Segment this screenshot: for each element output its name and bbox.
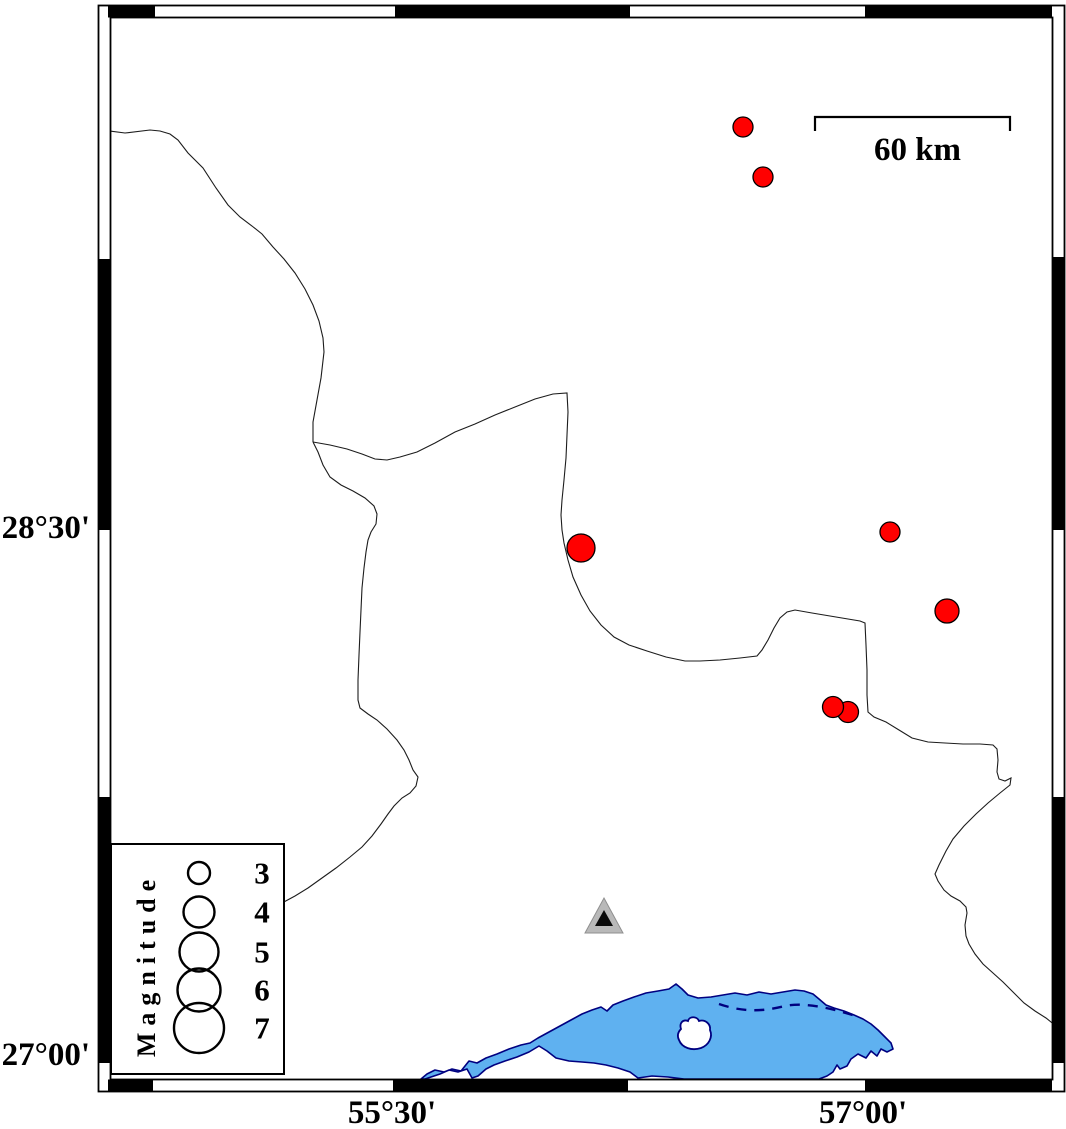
lat-label-28-30: 28°30' bbox=[0, 509, 90, 547]
frame-tick-segment bbox=[393, 1080, 628, 1092]
epicenter-marker bbox=[935, 599, 959, 623]
legend-magnitude-value: 5 bbox=[254, 935, 270, 970]
epicenter-layer bbox=[567, 117, 959, 723]
legend-magnitude-circle bbox=[184, 897, 215, 928]
legend-magnitude-value: 7 bbox=[254, 1011, 270, 1046]
scale-bar bbox=[815, 117, 1010, 131]
station-layer bbox=[585, 898, 623, 933]
magnitude-legend: Magnitude 34567 bbox=[110, 843, 285, 1075]
frame-tick-segment bbox=[108, 1080, 153, 1092]
scale-bar-label: 60 km bbox=[838, 132, 998, 169]
water-body bbox=[421, 984, 893, 1079]
lat-label-27-00: 27°00' bbox=[0, 1036, 90, 1074]
legend-magnitude-value: 6 bbox=[254, 973, 270, 1008]
epicenter-marker bbox=[823, 697, 844, 718]
frame-tick-segment bbox=[1053, 797, 1065, 1063]
boundary-line-west bbox=[110, 130, 324, 442]
seismicity-map: Magnitude 34567 28°30' 27°00' 55°30' 57°… bbox=[0, 0, 1066, 1129]
frame-tick-segment bbox=[865, 6, 1052, 18]
lon-label-55-30: 55°30' bbox=[312, 1094, 472, 1129]
legend-magnitude-circle bbox=[178, 969, 221, 1012]
boundary-branch-south bbox=[282, 442, 418, 903]
island bbox=[678, 1017, 711, 1049]
epicenter-marker bbox=[567, 534, 595, 562]
frame-tick-segment bbox=[865, 1080, 1052, 1092]
epicenter-marker bbox=[733, 117, 753, 137]
frame-tick-segment bbox=[99, 259, 111, 530]
epicenter-marker bbox=[880, 522, 900, 542]
frame-tick-segment bbox=[395, 6, 630, 18]
legend-magnitude-circle bbox=[188, 862, 210, 884]
legend-symbols: 34567 bbox=[112, 845, 283, 1073]
legend-magnitude-value: 3 bbox=[254, 856, 270, 891]
frame-tick-segment bbox=[108, 6, 155, 18]
lon-label-57-00: 57°00' bbox=[783, 1094, 943, 1129]
frame-tick-segment bbox=[99, 797, 111, 1063]
boundary-branch-northeast bbox=[313, 393, 1056, 1026]
frame-tick-segment bbox=[1053, 257, 1065, 530]
epicenter-marker bbox=[753, 167, 773, 187]
legend-magnitude-circle bbox=[180, 933, 219, 972]
legend-magnitude-value: 4 bbox=[254, 895, 270, 930]
